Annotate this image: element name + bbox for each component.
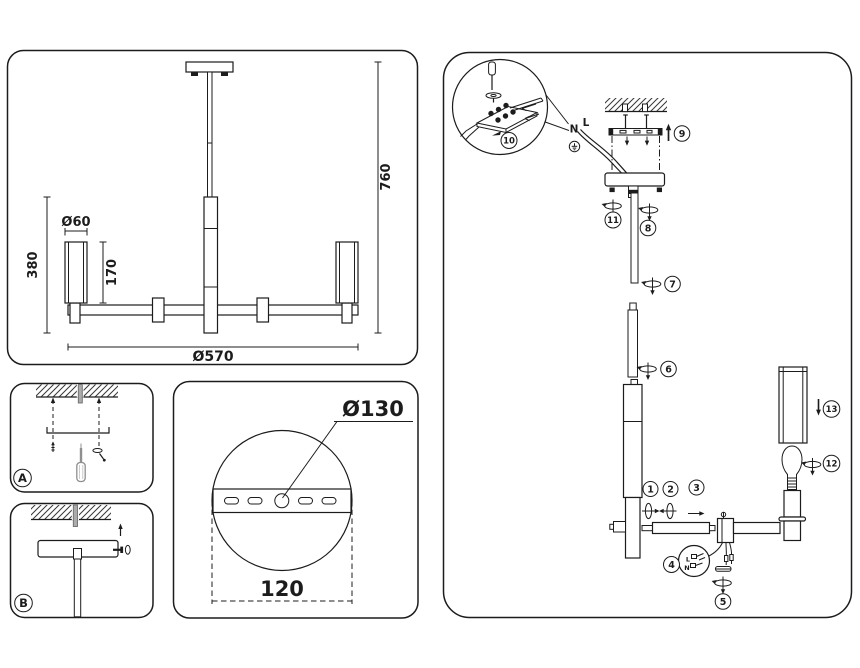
bar-block-left [153, 298, 165, 322]
mounting-bracket [213, 489, 351, 513]
ceiling-hatch [31, 505, 111, 520]
step-marker-12: 12 [823, 455, 840, 472]
bracket-slot [225, 498, 239, 505]
wire-neutral-label: N [570, 124, 579, 136]
instruction-sheet: Ø60 170 380 760 Ø570 [0, 0, 860, 668]
step-marker-13: 13 [823, 401, 840, 418]
threaded-pipe [73, 505, 77, 527]
step-5-label: 5 [720, 597, 727, 608]
ceiling-plate [186, 62, 233, 72]
lamp-shade-right [336, 242, 358, 303]
step-6-label: 6 [665, 364, 672, 375]
step-marker-10: 10 [501, 133, 517, 149]
arm-tube-right [734, 523, 781, 534]
detail-a-marker: A [14, 469, 32, 487]
dim-shade-height-label: 170 [105, 259, 120, 286]
socket-left [70, 303, 80, 323]
column-upper [624, 385, 643, 498]
center-column [204, 197, 218, 333]
dim-body-height-label: 380 [26, 251, 41, 278]
detail-b-label: B [19, 596, 28, 610]
ceiling-plate-foot-right [221, 72, 228, 76]
column-nipple [631, 380, 638, 385]
step-marker-1: 1 [643, 482, 658, 497]
socket-right [342, 303, 352, 323]
column-lower [626, 498, 641, 559]
threaded-pipe [78, 385, 82, 404]
panel-bracket-detail: Ø130 120 [174, 382, 419, 619]
step-marker-8: 8 [640, 220, 656, 236]
dim-overall-diameter-label: Ø570 [192, 349, 233, 365]
step-marker-11: 11 [605, 212, 621, 228]
step-2-label: 2 [667, 484, 674, 495]
panel-detail-a: A [11, 384, 154, 493]
step-marker-2: 2 [663, 482, 678, 497]
step-8-label: 8 [645, 223, 652, 234]
arm-connector [614, 522, 626, 533]
down-rod [74, 559, 80, 617]
panel-detail-b: B [11, 504, 154, 618]
step-4-label: 4 [668, 560, 675, 571]
step-10-label: 10 [503, 137, 515, 147]
socket-wire-live-label: L [686, 556, 690, 564]
canopy-screw [657, 188, 662, 193]
step-marker-5: 5 [715, 594, 731, 610]
hanger-rod [208, 72, 213, 197]
step-marker-7: 7 [665, 276, 681, 292]
step-13-label: 13 [826, 405, 838, 415]
detail-b-marker: B [15, 594, 33, 612]
detail-a-label: A [18, 471, 27, 485]
lamp-shade [779, 367, 807, 443]
dim-shade-diameter-label: Ø60 [61, 215, 90, 230]
step-marker-6: 6 [661, 361, 677, 377]
ceiling-plate-foot-left [191, 72, 198, 76]
rod-section-lower [628, 310, 638, 377]
step-marker-9: 9 [674, 126, 690, 142]
ceiling-hatch [605, 98, 667, 112]
step-11-label: 11 [607, 216, 619, 226]
step-1-label: 1 [647, 484, 654, 495]
step-9-label: 9 [679, 129, 686, 140]
panel-assembly: 10 N L [444, 53, 852, 618]
lamp-shade-left [65, 242, 87, 303]
arm-tube [653, 523, 710, 534]
arm-nipple-left [642, 526, 653, 531]
arm-nipple-right [710, 526, 716, 531]
panel-main-view: Ø60 170 380 760 Ø570 [8, 51, 418, 366]
wire-connector [730, 555, 733, 561]
bar-block-right [257, 298, 269, 322]
lamp-socket-upper [784, 491, 801, 518]
mounting-bracket [609, 129, 662, 136]
dim-bracket-diameter-label: Ø130 [342, 397, 404, 421]
socket-wire-neutral-label: N [684, 564, 689, 572]
lamp-socket-lower [784, 521, 801, 541]
step-12-label: 12 [826, 460, 838, 470]
rod-section-upper [631, 193, 638, 283]
diagram-canvas: Ø60 170 380 760 Ø570 [0, 0, 860, 668]
canopy-screw [610, 188, 615, 193]
step-7-label: 7 [669, 279, 676, 290]
bracket-slot [322, 498, 336, 505]
canopy-hub [74, 549, 82, 560]
canopy-plate [605, 173, 665, 186]
rod-cap [630, 303, 636, 310]
dim-mount-spacing-label: 120 [260, 577, 304, 601]
dim-overall-height-label: 760 [379, 163, 394, 190]
bracket-slot [248, 498, 262, 505]
bracket-slot [299, 498, 313, 505]
step-marker-4: 4 [664, 557, 680, 573]
step-marker-3: 3 [689, 480, 704, 495]
wire-connector [725, 556, 728, 562]
wire-live-label: L [583, 117, 590, 129]
arm-connector-pin [610, 524, 614, 529]
bracket-center-hole [275, 494, 289, 508]
step-3-label: 3 [693, 483, 700, 494]
